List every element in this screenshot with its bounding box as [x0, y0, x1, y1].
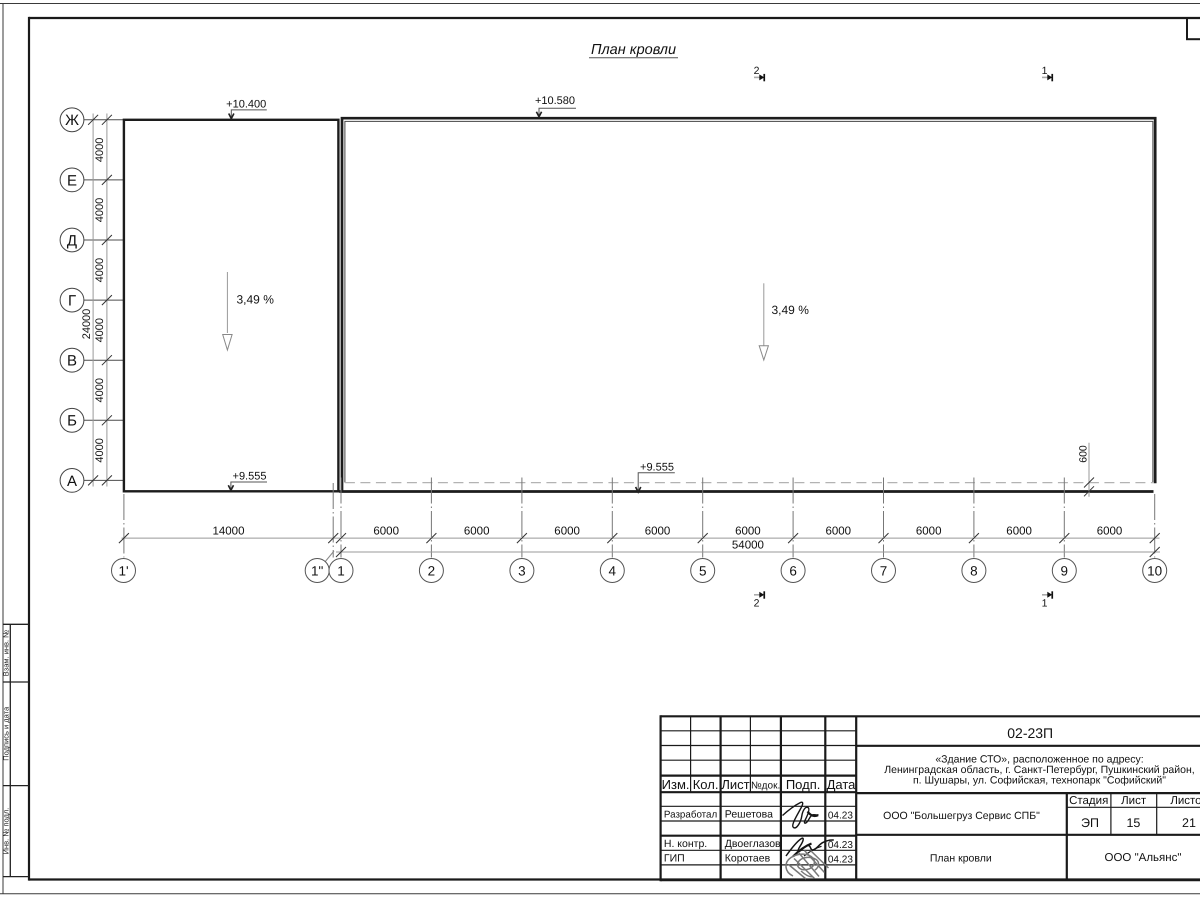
svg-text:Инв. № подл.: Инв. № подл.	[2, 808, 11, 855]
svg-text:Подп.: Подп.	[786, 777, 821, 792]
svg-text:6000: 6000	[916, 526, 942, 538]
svg-text:04.23: 04.23	[828, 840, 853, 851]
svg-text:А: А	[67, 473, 77, 490]
svg-text:Д: Д	[67, 232, 77, 249]
svg-text:Кол.: Кол.	[693, 777, 719, 792]
svg-text:6000: 6000	[1006, 526, 1032, 538]
svg-text:04.23: 04.23	[828, 811, 853, 822]
svg-text:Н. контр.: Н. контр.	[664, 838, 707, 850]
svg-text:15: 15	[1126, 816, 1140, 830]
svg-text:Лист: Лист	[721, 777, 749, 792]
svg-text:Взам. инв. №: Взам. инв. №	[2, 630, 11, 676]
svg-text:4000: 4000	[94, 198, 106, 222]
svg-text:ЭП: ЭП	[1081, 816, 1099, 830]
svg-text:ООО "Большегруз Сервис СПБ": ООО "Большегруз Сервис СПБ"	[883, 810, 1040, 822]
svg-text:02-23П: 02-23П	[1007, 725, 1053, 741]
svg-text:54000: 54000	[732, 540, 764, 552]
svg-text:Ж: Ж	[65, 112, 79, 129]
svg-text:Разработал: Разработал	[664, 810, 718, 821]
svg-text:Листов: Листов	[1170, 795, 1200, 807]
svg-text:+9.555: +9.555	[640, 462, 674, 474]
svg-text:1: 1	[1042, 598, 1048, 610]
svg-text:Б: Б	[67, 413, 77, 430]
svg-text:5: 5	[699, 563, 707, 578]
svg-text:ООО "Альянс": ООО "Альянс"	[1105, 852, 1182, 864]
svg-text:4000: 4000	[94, 258, 106, 282]
svg-text:4: 4	[609, 563, 617, 578]
svg-text:Изм.: Изм.	[662, 777, 690, 792]
svg-text:6000: 6000	[735, 526, 761, 538]
svg-text:1": 1"	[311, 563, 324, 578]
svg-text:6000: 6000	[826, 526, 852, 538]
svg-text:6: 6	[789, 563, 797, 578]
svg-text:6000: 6000	[1097, 526, 1123, 538]
svg-text:04.23: 04.23	[828, 855, 853, 866]
svg-text:6000: 6000	[464, 526, 490, 538]
svg-text:6000: 6000	[645, 526, 671, 538]
svg-text:Е: Е	[67, 172, 77, 189]
svg-text:9: 9	[1061, 563, 1069, 578]
svg-text:+10.400: +10.400	[226, 98, 266, 110]
svg-text:План кровли: План кровли	[930, 852, 992, 864]
svg-text:3: 3	[518, 563, 526, 578]
svg-text:24000: 24000	[81, 309, 93, 340]
svg-text:2: 2	[428, 563, 436, 578]
svg-text:Подпись и дата: Подпись и дата	[2, 706, 11, 761]
svg-text:1: 1	[337, 563, 345, 578]
svg-text:8: 8	[970, 563, 978, 578]
svg-text:2: 2	[754, 65, 760, 77]
svg-text:Двоеглазов: Двоеглазов	[725, 838, 781, 850]
svg-text:+9.555: +9.555	[233, 471, 267, 483]
svg-text:4000: 4000	[94, 438, 106, 462]
svg-text:План кровли: План кровли	[591, 42, 676, 58]
svg-text:14000: 14000	[213, 526, 245, 538]
svg-text:3,49 %: 3,49 %	[772, 303, 810, 317]
svg-text:+10.580: +10.580	[535, 95, 575, 107]
svg-text:21: 21	[1182, 816, 1196, 830]
svg-text:1': 1'	[118, 563, 128, 578]
svg-text:6000: 6000	[373, 526, 399, 538]
svg-text:600: 600	[1077, 445, 1089, 463]
svg-text:6000: 6000	[554, 526, 580, 538]
svg-text:1: 1	[1042, 65, 1048, 77]
svg-text:Г: Г	[68, 293, 76, 310]
svg-text:3,49 %: 3,49 %	[237, 293, 275, 307]
svg-text:4000: 4000	[94, 138, 106, 162]
svg-text:4000: 4000	[94, 378, 106, 402]
svg-text:ГИП: ГИП	[664, 853, 685, 865]
svg-text:В: В	[67, 353, 77, 370]
svg-text:4000: 4000	[94, 318, 106, 342]
svg-text:Лист: Лист	[1121, 795, 1147, 807]
svg-text:Решетова: Решетова	[725, 809, 773, 821]
svg-text:п. Шушары, ул. Софийская, техн: п. Шушары, ул. Софийская, технопарк "Соф…	[913, 774, 1166, 786]
svg-text:10: 10	[1147, 563, 1162, 578]
svg-text:7: 7	[880, 563, 888, 578]
svg-text:2: 2	[754, 598, 760, 610]
svg-text:№док.: №док.	[751, 781, 780, 792]
svg-text:Коротаев: Коротаев	[725, 853, 771, 865]
svg-text:Стадия: Стадия	[1069, 795, 1108, 807]
svg-text:Дата: Дата	[827, 777, 857, 792]
